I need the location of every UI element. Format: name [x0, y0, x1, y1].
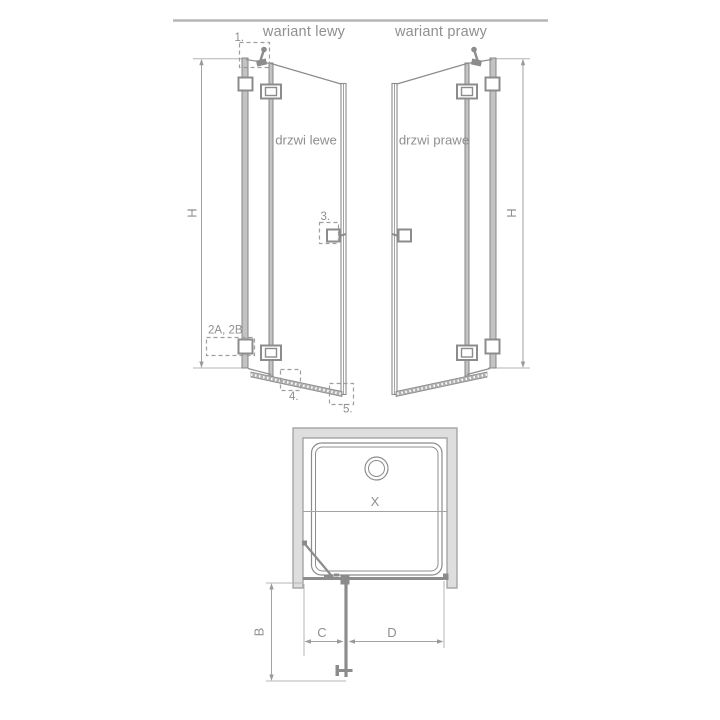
dim-label-b: B	[252, 628, 267, 637]
hinge-top-door-inner-left	[266, 88, 277, 96]
hinge-bottom-wall-left	[239, 340, 253, 354]
dim-label-h-right: H	[504, 208, 519, 217]
door-open-perpendicular	[336, 579, 353, 677]
wall-profile-right	[490, 58, 496, 368]
drain-inner	[369, 461, 385, 477]
hinge-bottom-wall-right	[486, 340, 500, 354]
dimension-d: D	[349, 625, 444, 644]
plan-view: X B	[252, 428, 458, 681]
dimension-b: B	[252, 583, 274, 681]
arrowhead	[305, 639, 312, 643]
door-label-left: drzwi lewe	[275, 133, 337, 148]
callout-3-label: 3.	[321, 211, 331, 223]
arrowhead	[521, 362, 525, 369]
dimension-h-left: H	[185, 59, 248, 368]
header-right-variant: wariant prawy	[394, 24, 488, 40]
shower-tray-outer	[312, 443, 443, 575]
dim-label-x: X	[371, 494, 380, 509]
dimension-c: C	[305, 625, 344, 644]
drawing-canvas: wariant lewy wariant prawy H	[0, 0, 720, 720]
hinge-top-door-inner-right	[462, 88, 473, 96]
shower-door-technical-drawing: wariant lewy wariant prawy H	[0, 0, 720, 720]
dim-label-c: C	[317, 625, 326, 640]
closing-strip	[443, 574, 449, 581]
wall-profile-left	[242, 58, 248, 368]
bottom-rail-right	[396, 372, 487, 397]
hinge-top-wall-right	[486, 78, 500, 91]
door-label-right: drzwi prawe	[399, 133, 469, 148]
dim-label-d: D	[387, 625, 396, 640]
hinge-top-wall-left	[239, 78, 253, 91]
arrowhead	[349, 639, 356, 643]
hinge-bottom-door-inner-left	[266, 349, 277, 358]
front-view-left: H 1. 3	[185, 32, 354, 416]
shower-tray-inner	[316, 447, 439, 571]
arrowhead	[521, 59, 525, 66]
front-view-right: H drzwi prawe	[392, 47, 530, 397]
arrowhead	[337, 639, 344, 643]
callout-2ab-label: 2A, 2B	[208, 325, 243, 337]
arrowhead	[437, 639, 444, 643]
door-swing-diagonal	[302, 541, 333, 578]
top-pivot-knob-right	[471, 47, 482, 67]
header-left-variant: wariant lewy	[262, 24, 346, 40]
hinge-bottom-door-inner-right	[462, 349, 473, 358]
arrowhead	[199, 362, 203, 369]
arrowhead	[199, 59, 203, 66]
top-pivot-knob-left	[256, 47, 267, 67]
callout-4-label: 4.	[289, 391, 299, 403]
hinge-axis-left	[269, 63, 273, 376]
arrowhead	[269, 583, 273, 590]
dimension-x: X	[303, 494, 447, 512]
dim-label-h-left: H	[185, 208, 200, 217]
arrowhead	[269, 675, 273, 682]
callout-5-label: 5.	[343, 404, 353, 416]
hinge-axis-right	[465, 63, 469, 376]
